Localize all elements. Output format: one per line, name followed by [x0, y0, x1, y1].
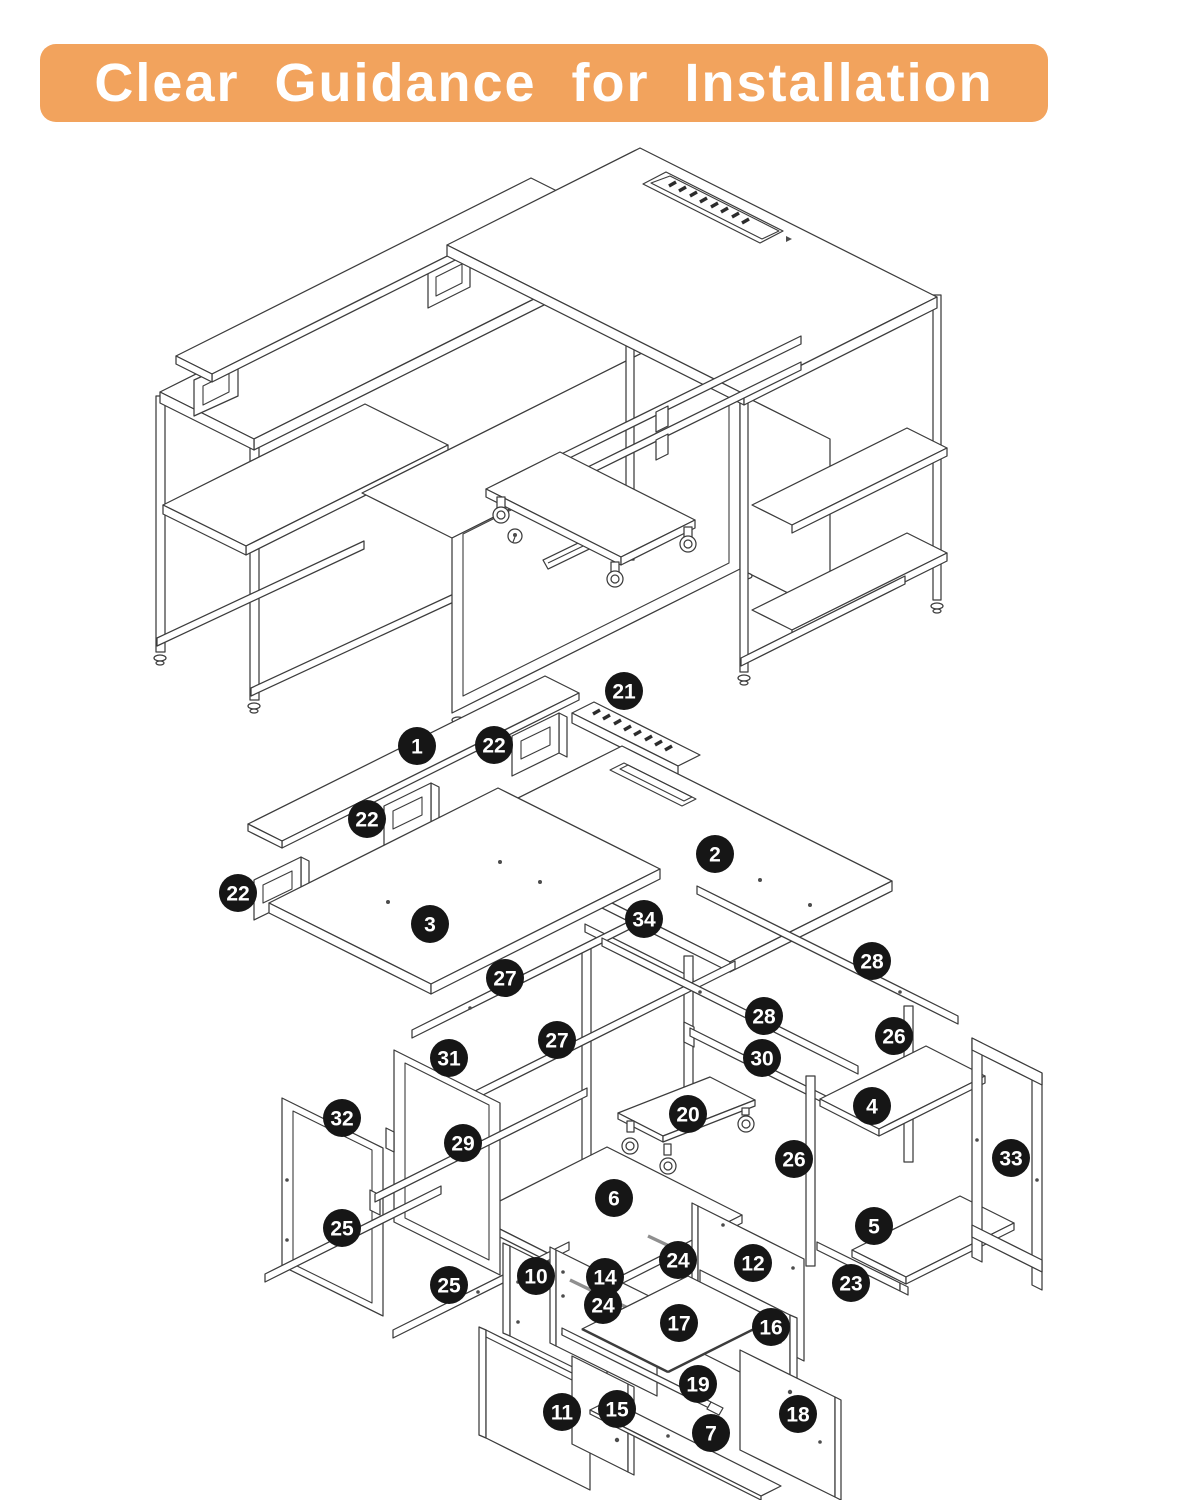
svg-text:10: 10: [524, 1266, 547, 1289]
svg-text:19: 19: [686, 1374, 709, 1397]
callout-part-27: 27: [538, 1021, 576, 1059]
svg-text:23: 23: [839, 1273, 862, 1296]
callout-part-32: 32: [323, 1099, 361, 1137]
callout-part-15: 15: [598, 1390, 636, 1428]
svg-text:26: 26: [782, 1149, 805, 1172]
callout-part-29: 29: [444, 1124, 482, 1162]
svg-text:4: 4: [866, 1096, 878, 1119]
svg-text:6: 6: [608, 1188, 620, 1211]
callout-part-11: 11: [543, 1393, 581, 1431]
callout-part-28: 28: [853, 942, 891, 980]
callout-part-5: 5: [855, 1207, 893, 1245]
svg-text:31: 31: [437, 1048, 461, 1071]
svg-text:24: 24: [666, 1250, 690, 1273]
svg-text:17: 17: [667, 1313, 690, 1336]
svg-text:21: 21: [612, 681, 636, 704]
svg-text:22: 22: [482, 735, 505, 758]
callout-part-17: 17: [660, 1304, 698, 1342]
callout-part-22: 22: [475, 726, 513, 764]
svg-text:24: 24: [591, 1295, 615, 1318]
svg-text:22: 22: [355, 809, 378, 832]
svg-text:33: 33: [999, 1148, 1022, 1171]
callout-part-23: 23: [832, 1264, 870, 1302]
callout-part-28: 28: [745, 997, 783, 1035]
svg-text:1: 1: [411, 736, 423, 759]
callout-part-18: 18: [779, 1395, 817, 1433]
svg-text:20: 20: [676, 1104, 699, 1127]
svg-text:11: 11: [551, 1402, 574, 1425]
svg-text:14: 14: [593, 1267, 617, 1290]
callout-part-7: 7: [692, 1414, 730, 1452]
callout-part-27: 27: [486, 959, 524, 997]
svg-text:29: 29: [451, 1133, 474, 1156]
callout-part-33: 33: [992, 1139, 1030, 1177]
callout-part-26: 26: [875, 1017, 913, 1055]
svg-text:25: 25: [330, 1218, 354, 1241]
callout-part-30: 30: [743, 1039, 781, 1077]
callout-part-10: 10: [517, 1257, 555, 1295]
svg-text:34: 34: [632, 909, 656, 932]
installation-diagram: 1234567101112141516171819202122222223242…: [0, 0, 1200, 1500]
left-frame: [154, 396, 458, 713]
svg-text:28: 28: [752, 1006, 776, 1029]
svg-text:27: 27: [493, 968, 516, 991]
svg-text:5: 5: [868, 1216, 880, 1239]
callout-part-26: 26: [775, 1140, 813, 1178]
svg-text:12: 12: [741, 1253, 764, 1276]
callout-part-24: 24: [584, 1286, 622, 1324]
callout-part-3: 3: [411, 905, 449, 943]
svg-text:7: 7: [705, 1423, 717, 1446]
svg-text:18: 18: [786, 1404, 810, 1427]
svg-text:3: 3: [424, 914, 436, 937]
callout-part-6: 6: [595, 1179, 633, 1217]
svg-text:16: 16: [759, 1317, 782, 1340]
svg-text:25: 25: [437, 1275, 461, 1298]
callout-part-19: 19: [679, 1365, 717, 1403]
svg-text:27: 27: [545, 1030, 568, 1053]
svg-text:28: 28: [860, 951, 884, 974]
callout-part-22: 22: [219, 874, 257, 912]
callout-part-22: 22: [348, 800, 386, 838]
callout-part-16: 16: [752, 1308, 790, 1346]
assembled-desk-drawing: [154, 148, 947, 723]
callout-part-24: 24: [659, 1241, 697, 1279]
exploded-parts-drawing: [248, 676, 1042, 1500]
callout-part-4: 4: [853, 1087, 891, 1125]
callout-part-1: 1: [398, 727, 436, 765]
callout-part-20: 20: [669, 1095, 707, 1133]
svg-text:32: 32: [330, 1108, 353, 1131]
callout-part-25: 25: [323, 1209, 361, 1247]
svg-text:30: 30: [750, 1048, 773, 1071]
callout-part-25: 25: [430, 1266, 468, 1304]
callout-part-34: 34: [625, 900, 663, 938]
svg-text:15: 15: [605, 1399, 629, 1422]
svg-text:22: 22: [226, 883, 249, 906]
callout-part-12: 12: [734, 1244, 772, 1282]
svg-text:26: 26: [882, 1026, 905, 1049]
callout-part-31: 31: [430, 1039, 468, 1077]
svg-text:2: 2: [709, 844, 721, 867]
page: { "banner": { "title": "Clear Guidance f…: [0, 0, 1200, 1500]
callout-part-2: 2: [696, 835, 734, 873]
callout-part-21: 21: [605, 672, 643, 710]
